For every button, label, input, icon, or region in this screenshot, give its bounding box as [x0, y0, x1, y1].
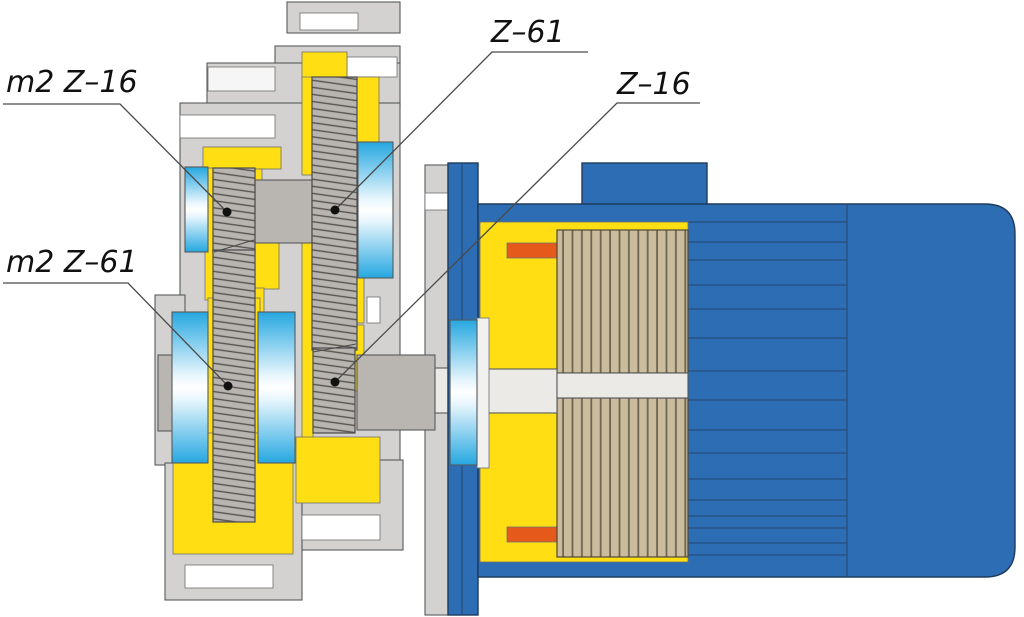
callout-dot-m2-z61: [224, 382, 233, 391]
oil-cavity-segment: [203, 147, 281, 169]
oil-cavity-segment: [302, 52, 347, 78]
bolt-slot: [347, 57, 397, 77]
callout-label-m2-z16: m2 Z–16: [6, 65, 138, 100]
oil-cavity-segment: [255, 243, 279, 289]
terminal-box: [582, 163, 707, 205]
coupling-shaft-stub: [435, 368, 449, 413]
bolt-slot: [185, 565, 273, 588]
bearing-output-right: [258, 312, 295, 463]
front-bearing-housing: [477, 318, 489, 468]
gear-m2-z61-wheel: [213, 250, 255, 522]
bolt-slot: [425, 193, 449, 210]
motor-shaft: [557, 373, 688, 398]
motor-shaft-journal: [487, 369, 557, 413]
rotor-core-upper: [557, 230, 688, 373]
gear-z16-pinion: [313, 348, 355, 433]
bolt-slot: [300, 13, 358, 30]
diagram-canvas: m2 Z–16 m2 Z–61 Z–61 Z–16: [0, 0, 1024, 617]
bolt-slot: [302, 515, 380, 540]
callout-label-z16: Z–16: [616, 67, 691, 102]
gear-m2-z16-pinion: [213, 168, 255, 252]
oil-cavity-segment: [296, 437, 380, 503]
bolt-slot: [208, 67, 275, 91]
winding-bar-top: [507, 243, 557, 258]
bearing-motor-front: [450, 320, 477, 465]
bolt-slot: [180, 115, 275, 138]
electric-motor: [448, 163, 1015, 615]
oil-cavity-segment: [357, 77, 379, 142]
callout-dot-z61: [331, 206, 340, 215]
callout-dot-z16: [331, 378, 340, 387]
callout-dot-m2-z16: [223, 208, 232, 217]
bearing-intermediate-left: [185, 167, 208, 252]
reducer-motor-diagram: m2 Z–16 m2 Z–61 Z–61 Z–16: [0, 0, 1024, 617]
motor-shaft-coupling: [357, 355, 435, 430]
winding-bar-bottom: [507, 527, 557, 542]
intermediate-shaft-hub: [255, 180, 312, 243]
callout-label-m2-z61: m2 Z–61: [6, 245, 138, 280]
callout-label-z61: Z–61: [490, 15, 565, 50]
oil-cavity-segment: [302, 243, 313, 439]
rotor-core-lower: [557, 398, 688, 557]
bolt-slot: [367, 297, 380, 323]
bearing-intermediate-right: [358, 142, 393, 278]
